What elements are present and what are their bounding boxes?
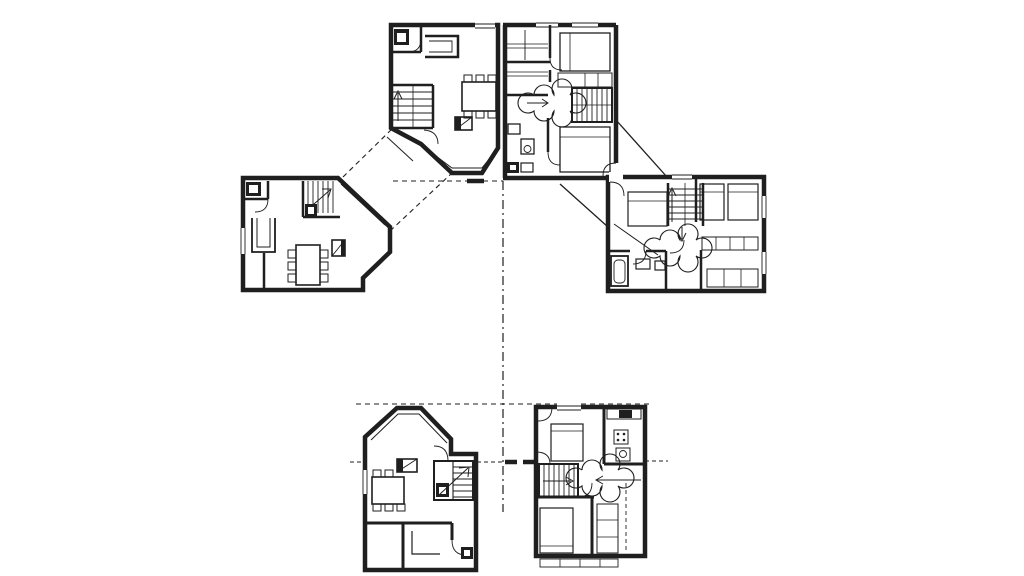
- bed-bottom: [560, 127, 610, 172]
- terrace-row: [540, 559, 618, 567]
- dining-table: [296, 245, 320, 285]
- right-court-diagonal-2: [560, 184, 608, 227]
- window-gap-right-2: [760, 252, 769, 274]
- closet-shelf-lines-1: [507, 44, 548, 48]
- kitchen-fixture-circle: [620, 451, 627, 458]
- chairs-top: [464, 75, 496, 82]
- hall-door-arc: [434, 446, 448, 461]
- bed-top-left: [551, 424, 583, 461]
- closet-shelf-lines-2: [507, 72, 548, 76]
- bath-toilet-bowl: [524, 146, 531, 153]
- court-dash-diagonal-1: [343, 128, 393, 177]
- stove: [614, 430, 628, 444]
- dining-table: [372, 477, 404, 504]
- bed-top: [560, 33, 610, 71]
- unit-mid-right: [608, 172, 769, 291]
- window-gap-top-1: [536, 20, 558, 29]
- chairs-top: [373, 470, 393, 477]
- unit-bottom-right: [536, 403, 645, 567]
- stair-treads: [668, 189, 703, 219]
- unit-top-left: [391, 20, 498, 173]
- bath-door-arc: [633, 251, 646, 264]
- closet-row-mid-dividers: [716, 237, 744, 250]
- room-counter-L: [412, 531, 440, 554]
- bay-door-arc: [424, 130, 438, 144]
- unit-bottom-left: [361, 408, 476, 570]
- wardrobe: [597, 504, 618, 553]
- court-dash-diagonal-2: [390, 173, 452, 231]
- unit-top-right: [503, 20, 616, 178]
- chairs-bottom: [373, 504, 405, 511]
- chairs-left: [288, 250, 296, 282]
- bath-box: [521, 163, 533, 172]
- wardrobe-dividers: [597, 520, 618, 537]
- stove-burner-4: [623, 439, 626, 442]
- wc-door-arc: [408, 39, 421, 52]
- bath-sink: [508, 124, 520, 134]
- bed-top-right-2: [728, 184, 758, 220]
- window-gap-top-2: [572, 20, 598, 29]
- entry-door-arc: [610, 182, 624, 196]
- kitchen-counter: [425, 36, 458, 57]
- stove-burner-3: [617, 439, 620, 442]
- closet-row-bottom: [707, 269, 758, 287]
- unit-mid-left: [239, 178, 390, 290]
- terrace-row-dividers: [560, 559, 600, 567]
- window-gap-top: [557, 403, 581, 412]
- chamfer-glazing-lower: [366, 254, 386, 274]
- dining-table: [462, 82, 496, 111]
- kitchen-counter-inner: [429, 41, 452, 52]
- closet-row-dividers: [585, 73, 598, 87]
- stair-dark-box-inner: [439, 487, 446, 494]
- stove-burner-2: [623, 433, 626, 436]
- court-thin-diagonal: [387, 137, 413, 161]
- hall-door-arc: [548, 152, 560, 165]
- wc-fixture-inner: [397, 33, 406, 42]
- window-gap-right-1: [760, 196, 769, 218]
- window-gap-left: [239, 228, 247, 254]
- outline-walls: [365, 408, 476, 570]
- bathtub-inner: [614, 260, 625, 283]
- stair-dark-box-inner: [308, 207, 314, 214]
- entry-door-gap: [609, 172, 623, 182]
- chairs-right: [320, 250, 328, 282]
- bath-toilet: [521, 139, 534, 154]
- bath-dark-inner: [510, 165, 516, 170]
- dark-fixture-inner: [464, 550, 470, 556]
- kitchen-sink-dark: [619, 410, 632, 418]
- closet-row-bottom-dividers: [724, 269, 741, 287]
- wc-door-arc: [255, 199, 268, 212]
- right-court-diagonal-1: [616, 120, 667, 177]
- stair-treads: [453, 467, 473, 497]
- chamfer-glazing-upper: [341, 184, 385, 225]
- wc-fixture-inner: [249, 185, 258, 193]
- window-gap-left: [361, 470, 369, 494]
- bed-top-left: [628, 192, 667, 226]
- kitchen-counter-inner: [257, 218, 270, 247]
- window-gap-top: [672, 172, 692, 181]
- stair-arrow: [543, 477, 573, 485]
- stove-burner-1: [617, 433, 620, 436]
- floor-plan-svg: [0, 0, 1024, 576]
- floor-plan-figure: Housing cluster floor plan drawing: [0, 0, 1024, 576]
